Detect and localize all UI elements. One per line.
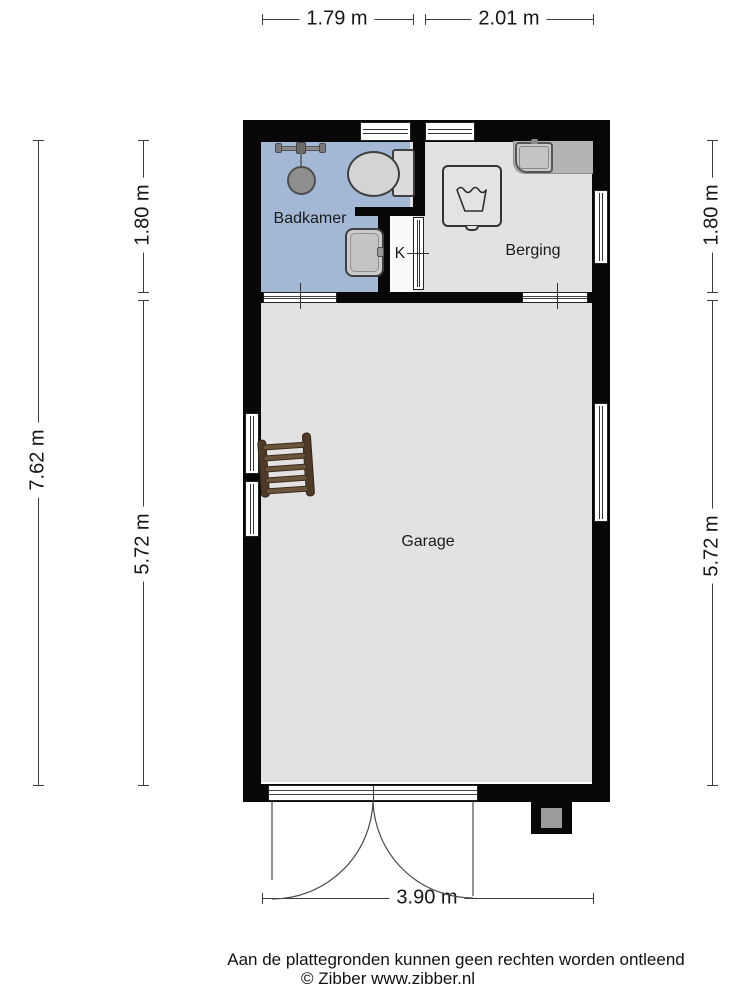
shower-knob-right-icon xyxy=(319,143,326,153)
door-leaf-badkamer xyxy=(300,283,301,309)
window-top-berging xyxy=(425,122,475,141)
room-label-garage: Garage xyxy=(401,533,454,551)
garage-door-meeting-stile xyxy=(373,786,374,802)
dimension-label-top-right: 2.01 m xyxy=(471,8,546,31)
ladder-rung xyxy=(262,442,305,451)
dimension-label-right-upper: 1.80 m xyxy=(701,177,724,252)
washbasin-basin-icon xyxy=(350,233,379,272)
shower-knob-left-icon xyxy=(275,143,282,153)
garage-door-swing-arc-right xyxy=(373,801,473,898)
sink-basin-icon xyxy=(519,146,549,169)
disclaimer-text: Aan de plattegronden kunnen geen rechten… xyxy=(227,950,684,970)
dimension-tick xyxy=(138,292,149,293)
dimension-tick xyxy=(593,893,594,904)
room-label-berging: Berging xyxy=(505,242,560,260)
floorplan-canvas: 1.79 m 2.01 m 7.62 m 1.80 m 5.72 m 1.80 … xyxy=(0,0,750,1000)
ladder-rung xyxy=(265,475,308,484)
dimension-label-right-lower: 5.72 m xyxy=(701,508,724,583)
door-berging-threshold xyxy=(522,292,588,303)
dimension-label-left-lower: 5.72 m xyxy=(132,506,155,581)
dimension-tick xyxy=(425,14,426,25)
dimension-tick xyxy=(262,14,263,25)
dimension-tick xyxy=(138,300,149,301)
dimension-label-left-outer: 7.62 m xyxy=(27,422,50,497)
room-label-badkamer: Badkamer xyxy=(274,210,347,228)
copyright-text: © Zibber www.zibber.nl xyxy=(301,969,475,989)
dimension-label-bottom: 3.90 m xyxy=(389,887,464,910)
dimension-tick xyxy=(593,14,594,25)
ladder-rung xyxy=(264,464,307,473)
garage-door-swing-arc-left xyxy=(272,801,373,899)
washbasin-tap-icon xyxy=(377,247,384,257)
ladder-rung xyxy=(263,453,306,462)
dimension-tick xyxy=(707,292,718,293)
dimension-tick xyxy=(707,140,718,141)
washing-machine-icon xyxy=(442,165,502,227)
dimension-tick xyxy=(33,785,44,786)
dimension-tick xyxy=(413,14,414,25)
room-label-k: K xyxy=(395,245,406,263)
dimension-tick xyxy=(138,140,149,141)
window-right-garage xyxy=(594,403,608,522)
ladder-rung xyxy=(266,486,309,495)
ladder-icon xyxy=(256,432,317,500)
k-leader-line xyxy=(407,253,429,254)
dimension-label-top-left: 1.79 m xyxy=(299,8,374,31)
toilet-bowl-icon xyxy=(347,151,400,197)
window-left-lower xyxy=(245,481,259,537)
door-leaf-berging xyxy=(557,283,558,309)
dimension-tick xyxy=(262,893,263,904)
dimension-tick xyxy=(707,300,718,301)
wall-stub-k-top xyxy=(355,207,425,216)
shower-head-icon xyxy=(287,166,316,195)
window-top-badkamer xyxy=(360,122,411,141)
dimension-tick xyxy=(138,785,149,786)
dimension-tick xyxy=(33,140,44,141)
dimension-label-left-upper: 1.80 m xyxy=(132,177,155,252)
sink-tap-icon xyxy=(531,139,538,144)
dimension-tick xyxy=(707,785,718,786)
window-right-berging xyxy=(594,190,608,264)
chimney-flue xyxy=(541,808,562,828)
